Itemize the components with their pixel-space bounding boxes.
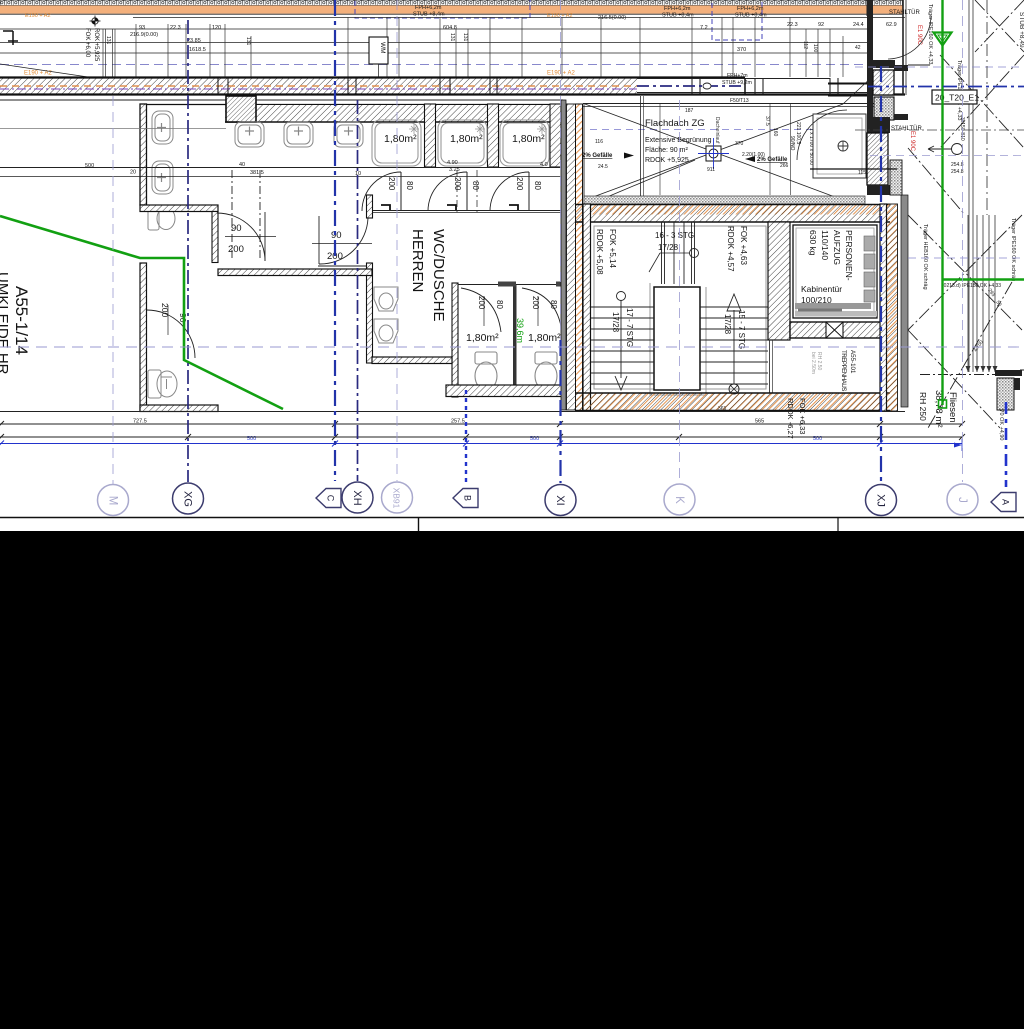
svg-text:WM: WM (379, 42, 386, 54)
svg-text:1,80m²: 1,80m² (512, 133, 545, 145)
svg-text:17/28: 17/28 (611, 312, 620, 333)
svg-text:XB91: XB91 (392, 488, 402, 509)
svg-text:Flachdach ZG: Flachdach ZG (645, 118, 705, 129)
svg-text:Träger IPE160 OK schräg: Träger IPE160 OK schräg (1010, 218, 1016, 281)
svg-text:630 kg: 630 kg (808, 230, 818, 256)
svg-text:XI: XI (554, 495, 566, 505)
svg-text:93: 93 (139, 25, 145, 31)
svg-text:3.25: 3.25 (449, 167, 460, 173)
svg-text:XG: XG (182, 491, 194, 507)
svg-text:131: 131 (245, 37, 251, 46)
svg-text:80: 80 (549, 300, 558, 309)
svg-text:RDOK +5,08: RDOK +5,08 (595, 229, 604, 275)
svg-text:187: 187 (685, 108, 694, 114)
svg-text:Fläche: 90 m²: Fläche: 90 m² (645, 147, 688, 154)
svg-text:FOK +4,63: FOK +4,63 (739, 226, 748, 265)
svg-text:254.8: 254.8 (951, 162, 964, 168)
svg-text:4.90: 4.90 (447, 160, 458, 166)
svg-text:216.5(0.00): 216.5(0.00) (598, 15, 626, 21)
svg-text:22.3: 22.3 (170, 25, 181, 31)
svg-text:80: 80 (495, 300, 504, 309)
svg-text:266: 266 (780, 163, 789, 169)
svg-text:17/28: 17/28 (723, 314, 732, 335)
svg-text:381.5: 381.5 (250, 170, 264, 176)
svg-text:1,80m²: 1,80m² (384, 133, 417, 145)
svg-text:20: 20 (130, 170, 136, 176)
svg-text:FPH+6,2m: FPH+6,2m (737, 6, 764, 12)
svg-text:E190 + A2: E190 + A2 (25, 13, 51, 19)
svg-text:23.85: 23.85 (187, 38, 201, 44)
svg-text:UMKLEIDE HR: UMKLEIDE HR (0, 272, 11, 375)
svg-text:FPH+6,2m: FPH+6,2m (664, 6, 691, 12)
svg-text:120: 120 (212, 25, 221, 31)
svg-text:Träger IPE160 OK +4,33: Träger IPE160 OK +4,33 (927, 4, 933, 64)
svg-text:FOK +6,33: FOK +6,33 (798, 398, 807, 434)
svg-text:200: 200 (160, 303, 170, 317)
svg-text:216.9(0.00): 216.9(0.00) (130, 32, 158, 38)
svg-text:1,80m²: 1,80m² (466, 332, 499, 344)
svg-text:254.8: 254.8 (951, 169, 964, 175)
svg-text:FOK +5,14: FOK +5,14 (608, 229, 617, 268)
svg-text:Kabinentür: Kabinentür (801, 284, 842, 294)
svg-text:J: J (956, 497, 968, 503)
svg-text:24.4: 24.4 (853, 22, 864, 28)
svg-text:17 - 7 STG: 17 - 7 STG (625, 308, 634, 347)
svg-text:RDOK -6,27: RDOK -6,27 (786, 398, 795, 439)
svg-text:Dacheinlauf: Dacheinlauf (714, 117, 720, 144)
svg-text:STUB +8,4m: STUB +8,4m (413, 12, 445, 18)
svg-text:M: M (107, 496, 119, 506)
svg-text:WC/DUSCHE: WC/DUSCHE (430, 229, 447, 322)
svg-text:TREPPENHAUS: TREPPENHAUS (840, 350, 847, 391)
svg-text:911: 911 (707, 167, 715, 173)
svg-text:PERSONEN-: PERSONEN- (844, 230, 854, 281)
svg-text:200: 200 (531, 296, 540, 310)
svg-text:bei 2.50m: bei 2.50m (810, 352, 816, 374)
svg-text:Extensive Begrünung: Extensive Begrünung (645, 137, 712, 144)
svg-text:FPH+6,2m: FPH+6,2m (415, 5, 442, 11)
svg-text:17/28: 17/28 (658, 243, 679, 252)
svg-text:604.8: 604.8 (443, 25, 457, 31)
svg-text:200: 200 (453, 177, 462, 191)
svg-text:E190 + A2: E190 + A2 (547, 13, 573, 19)
svg-text:39,6m: 39,6m (515, 318, 525, 343)
svg-text:80: 80 (405, 181, 414, 190)
svg-text:XJ: XJ (875, 494, 887, 507)
svg-text:K: K (673, 496, 685, 504)
svg-text:F50/T13: F50/T13 (730, 98, 749, 104)
svg-text:FOK +6,00: FOK +6,00 (84, 28, 90, 58)
svg-text:STUB +8,49: STUB +8,49 (1018, 12, 1024, 48)
svg-text:ROK +5,925: ROK +5,925 (93, 28, 99, 62)
svg-text:A55-1/14: A55-1/14 (12, 286, 31, 355)
svg-text:2% Gefälle: 2% Gefälle (582, 153, 613, 159)
svg-text:131: 131 (449, 33, 455, 42)
svg-text:A: A (1001, 499, 1011, 505)
svg-text:A55-101: A55-101 (849, 350, 856, 374)
svg-text:370: 370 (735, 141, 744, 147)
svg-text:RDOK +4,57: RDOK +4,57 (726, 226, 735, 272)
svg-text:116: 116 (595, 139, 603, 145)
svg-text:727.5: 727.5 (133, 419, 147, 425)
svg-text:E190 + A2: E190 + A2 (547, 71, 576, 77)
svg-text:90/NO: 90/NO (789, 136, 795, 151)
svg-text:RDOK +5,925: RDOK +5,925 (645, 157, 689, 164)
svg-text:92: 92 (818, 22, 824, 28)
svg-text:4.0: 4.0 (540, 162, 548, 168)
svg-text:100/210: 100/210 (801, 295, 832, 305)
svg-text:257.5: 257.5 (451, 419, 465, 425)
svg-text:Träger HEB160 OK schräg: Träger HEB160 OK schräg (922, 224, 928, 290)
svg-text:E1 90C: E1 90C (909, 131, 915, 152)
svg-text:90: 90 (331, 230, 342, 241)
svg-text:HERREN: HERREN (409, 229, 426, 292)
svg-text:200: 200 (228, 244, 244, 255)
svg-text:200: 200 (477, 296, 486, 310)
svg-text:22.3: 22.3 (787, 22, 798, 28)
svg-text:XH: XH (351, 490, 363, 505)
svg-text:90: 90 (231, 223, 242, 234)
svg-text:B: B (463, 495, 473, 501)
svg-text:STAHLTÜR: STAHLTÜR (889, 9, 920, 16)
svg-text:500: 500 (85, 163, 94, 169)
svg-text:80: 80 (471, 181, 480, 190)
svg-text:80: 80 (533, 181, 542, 190)
svg-text:160: 160 (772, 128, 778, 137)
svg-text:16 - 3 STG: 16 - 3 STG (655, 231, 694, 240)
svg-text:1618.5: 1618.5 (189, 47, 206, 53)
svg-text:110/140: 110/140 (820, 230, 830, 260)
svg-text:C: C (326, 495, 336, 502)
svg-text:STUB +9,2m: STUB +9,2m (722, 80, 752, 86)
svg-text:FPH+7m: FPH+7m (727, 73, 748, 79)
svg-text:RH 2.50: RH 2.50 (816, 352, 822, 371)
svg-text:Fliesen: Fliesen (947, 392, 958, 423)
svg-text:62.9: 62.9 (886, 22, 897, 28)
svg-text:200: 200 (387, 177, 396, 191)
svg-text:131: 131 (462, 33, 468, 42)
svg-text:1,80m²: 1,80m² (450, 133, 483, 145)
svg-text:370: 370 (737, 47, 746, 53)
svg-text:7.2: 7.2 (700, 25, 708, 31)
svg-text:1,80m²: 1,80m² (528, 332, 561, 344)
svg-text:115: 115 (858, 170, 866, 176)
svg-text:RH 250: RH 250 (918, 392, 928, 421)
svg-text:24.5: 24.5 (598, 164, 608, 170)
svg-text:AUFZUG: AUFZUG (832, 230, 842, 265)
svg-text:131: 131 (105, 36, 111, 45)
svg-text:565: 565 (755, 419, 764, 425)
svg-text:112: 112 (802, 41, 808, 49)
svg-text:3x150-810: 3x150-810 (959, 117, 965, 141)
svg-text:42: 42 (855, 45, 861, 51)
svg-text:37.5: 37.5 (764, 116, 770, 126)
svg-text:STAHLTÜR: STAHLTÜR (891, 125, 922, 132)
svg-text:40: 40 (239, 162, 245, 168)
svg-text:200: 200 (515, 177, 524, 191)
svg-text:2.20(1.00): 2.20(1.00) (742, 152, 765, 158)
svg-text:15 - 7 STG: 15 - 7 STG (737, 310, 746, 349)
svg-text:100: 100 (812, 44, 818, 53)
